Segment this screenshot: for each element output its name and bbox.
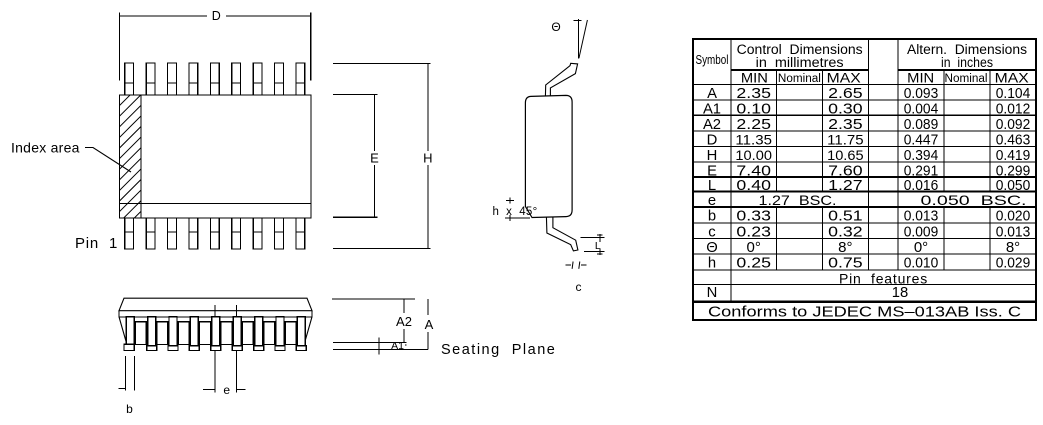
svg-text:Nominal: Nominal [778,73,821,85]
svg-text:c: c [708,225,716,241]
svg-text:H: H [707,148,718,164]
svg-text:Conforms to JEDEC MS–013AB Iss: Conforms to JEDEC MS–013AB Iss. C [708,304,1021,320]
svg-text:A1: A1 [703,101,721,117]
svg-text:8°: 8° [838,239,852,256]
svg-text:0.050 BSC.: 0.050 BSC. [921,192,1027,208]
svg-text:A: A [707,86,717,102]
svg-text:MIN: MIN [741,71,768,86]
svg-text:0.029: 0.029 [996,256,1031,272]
svg-text:L: L [595,240,601,252]
svg-text:11.35: 11.35 [735,133,772,148]
svg-text:2.25: 2.25 [736,116,771,133]
svg-text:1.27 BSC.: 1.27 BSC. [759,192,837,208]
svg-text:2.35: 2.35 [828,116,863,133]
svg-text:in inches: in inches [941,55,993,70]
svg-text:MAX: MAX [995,71,1029,86]
svg-text:0.013: 0.013 [904,208,939,224]
svg-text:0.32: 0.32 [828,224,863,241]
svg-text:0.75: 0.75 [828,255,863,272]
svg-text:11.75: 11.75 [827,133,864,148]
svg-text:0.394: 0.394 [904,148,939,164]
svg-text:0.010: 0.010 [904,256,939,272]
svg-text:in millimetres: in millimetres [756,55,844,70]
svg-text:h x 45°: h x 45° [493,206,538,218]
svg-text:N: N [707,285,718,301]
svg-text:e: e [708,193,716,209]
svg-text:10.00: 10.00 [735,148,772,163]
svg-text:c: c [576,280,582,294]
svg-text:0.25: 0.25 [736,255,771,272]
svg-text:b: b [126,402,133,416]
svg-text:8°: 8° [1006,239,1020,256]
svg-text:h: h [708,256,716,272]
svg-text:D: D [212,9,221,23]
svg-text:Θ: Θ [706,240,718,256]
svg-text:Θ: Θ [551,20,560,34]
svg-text:A1: A1 [391,340,404,352]
svg-text:A2: A2 [396,314,412,329]
svg-text:0.463: 0.463 [996,133,1031,149]
svg-text:0.419: 0.419 [996,148,1031,164]
svg-text:0.089: 0.089 [904,117,939,133]
svg-text:0.51: 0.51 [828,207,863,224]
svg-text:0.447: 0.447 [904,133,939,149]
svg-text:A: A [425,317,434,332]
svg-text:Pin features: Pin features [839,270,928,286]
svg-text:e: e [223,383,230,397]
svg-text:0.33: 0.33 [736,207,771,224]
svg-text:Nominal: Nominal [945,73,988,85]
svg-text:A2: A2 [703,117,721,133]
svg-text:E: E [370,150,379,165]
svg-text:0.23: 0.23 [736,224,771,241]
svg-text:Seating Plane: Seating Plane [441,342,556,358]
svg-text:b: b [708,208,716,224]
svg-text:MAX: MAX [827,71,861,86]
svg-text:10.65: 10.65 [827,148,864,163]
svg-text:L: L [708,178,716,194]
svg-text:0°: 0° [747,239,761,256]
svg-text:0.004: 0.004 [904,101,939,117]
svg-text:0.012: 0.012 [996,101,1031,117]
svg-text:H: H [423,150,432,165]
svg-text:D: D [707,133,718,149]
svg-text:0°: 0° [914,239,928,256]
svg-text:Index area: Index area [11,139,80,155]
svg-text:0.093: 0.093 [904,86,939,102]
svg-text:0.104: 0.104 [996,86,1031,102]
svg-text:0.020: 0.020 [996,208,1031,224]
svg-text:Pin 1: Pin 1 [75,235,118,252]
svg-text:Symbol: Symbol [696,52,729,67]
svg-text:18: 18 [892,285,908,301]
svg-text:0.092: 0.092 [996,117,1031,133]
svg-text:MIN: MIN [907,71,934,86]
